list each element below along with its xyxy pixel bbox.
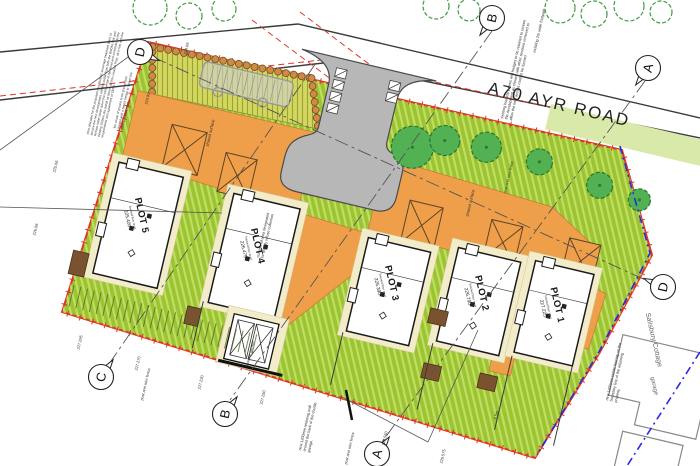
section-marker-b: B [480,6,505,36]
section-marker-a: A [636,56,661,85]
crossing-mark [326,103,339,114]
existing-tree-icon [545,0,575,23]
crossing-mark [388,80,401,91]
crossing-mark [385,92,398,103]
existing-tree-icon [650,1,672,23]
crossing-mark [332,79,345,90]
section-marker-b: B [213,397,238,427]
site-plan-drawing: PLOT 5finished floor level225.400PLOT 4f… [0,0,700,466]
existing-trees [133,0,672,29]
existing-tree-icon [614,0,644,21]
existing-tree-icon [212,0,236,21]
plan-canvas: PLOT 5finished floor level225.400PLOT 4f… [0,0,700,466]
section-marker-d: D [644,275,676,300]
crossing-mark [329,91,342,102]
neighbour-garage-outline [613,431,683,466]
existing-tree-icon [176,3,202,29]
existing-tree-icon [423,0,449,19]
crossing-mark [335,68,348,79]
section-marker-a: A [365,437,390,466]
existing-tree-icon [581,1,607,27]
salisbury-cottage-outline [603,335,700,440]
existing-tree-icon [458,0,480,21]
existing-tree-icon [133,0,167,25]
section-marker-c: C [89,360,114,390]
